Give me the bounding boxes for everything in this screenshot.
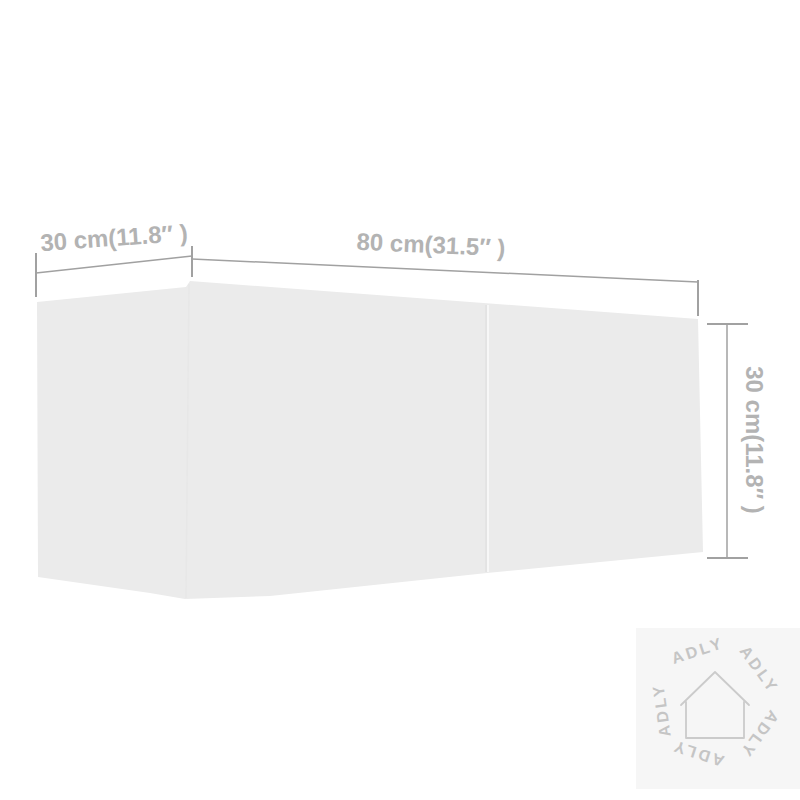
product-dimension-image: 30 cm(11.8″ ) 80 cm(31.5″ ) 30 cm(11.8″ … — [0, 0, 800, 800]
depth-line — [36, 256, 192, 273]
cabinet-body — [37, 281, 703, 599]
watermark: ADLY ADLY ADLY ADLY ADLY — [636, 628, 800, 789]
width-line — [192, 259, 698, 282]
height-dimension-label: 30 cm(11.8″ ) — [740, 366, 768, 514]
